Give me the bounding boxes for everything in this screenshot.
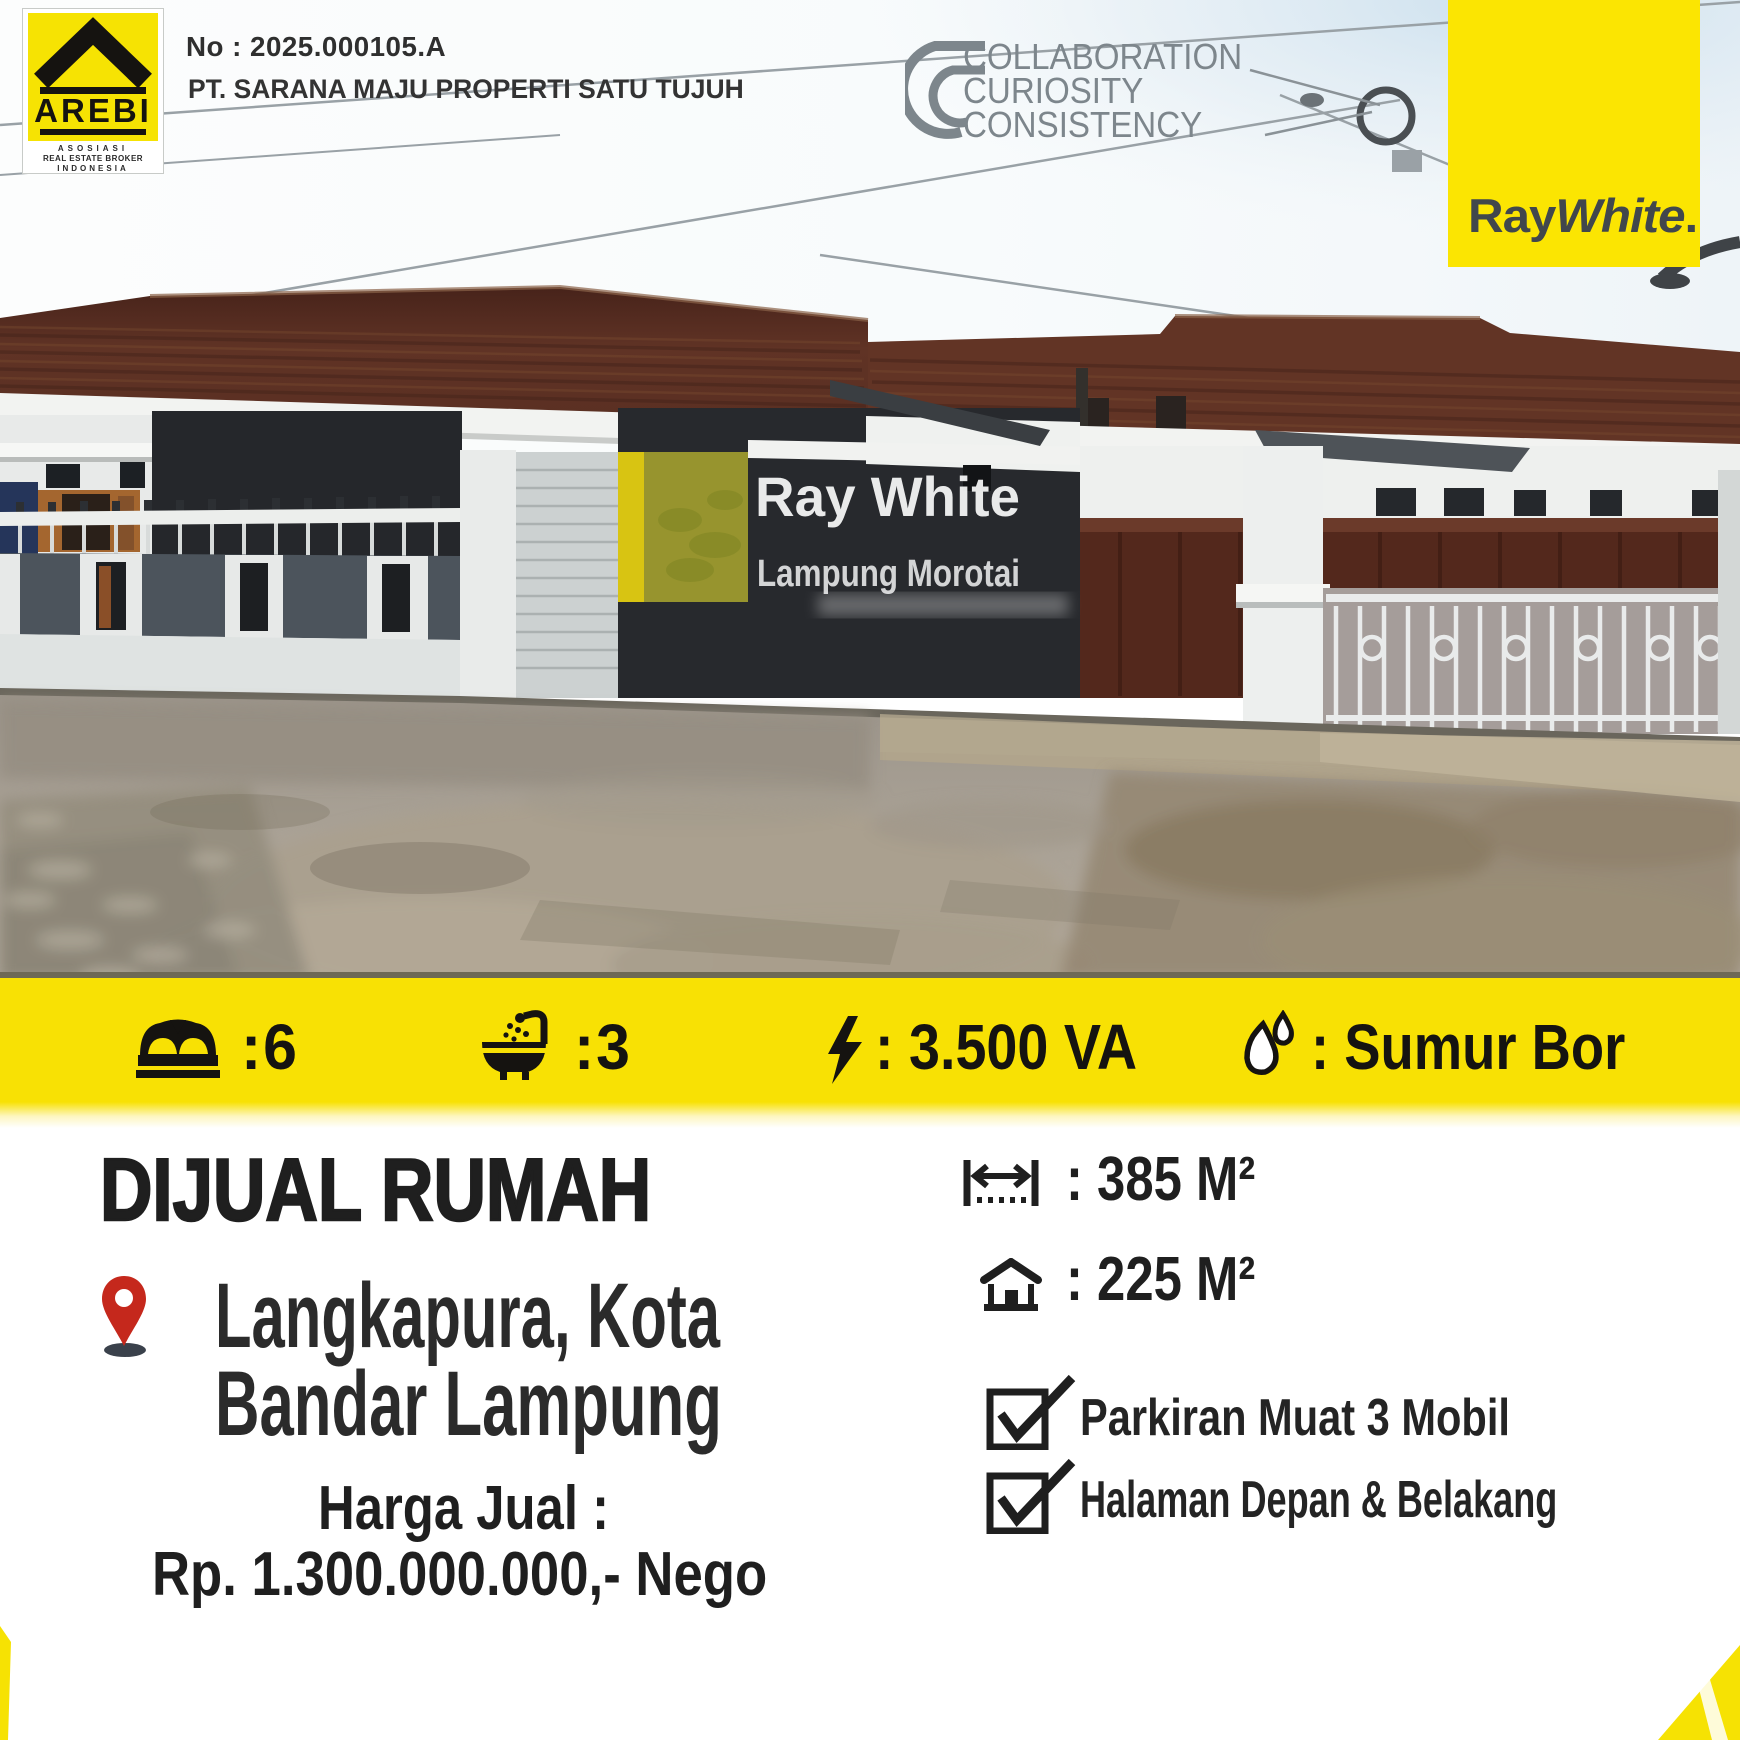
svg-text:AREBI: AREBI — [34, 92, 152, 129]
svg-text:REAL ESTATE BROKER: REAL ESTATE BROKER — [43, 154, 143, 163]
svg-text:ASOSIASI: ASOSIASI — [58, 144, 128, 153]
svg-text:Ray White: Ray White — [755, 465, 1020, 528]
svg-text:Lampung Morotai: Lampung Morotai — [757, 553, 1020, 595]
svg-text:INDONESIA: INDONESIA — [57, 164, 128, 173]
